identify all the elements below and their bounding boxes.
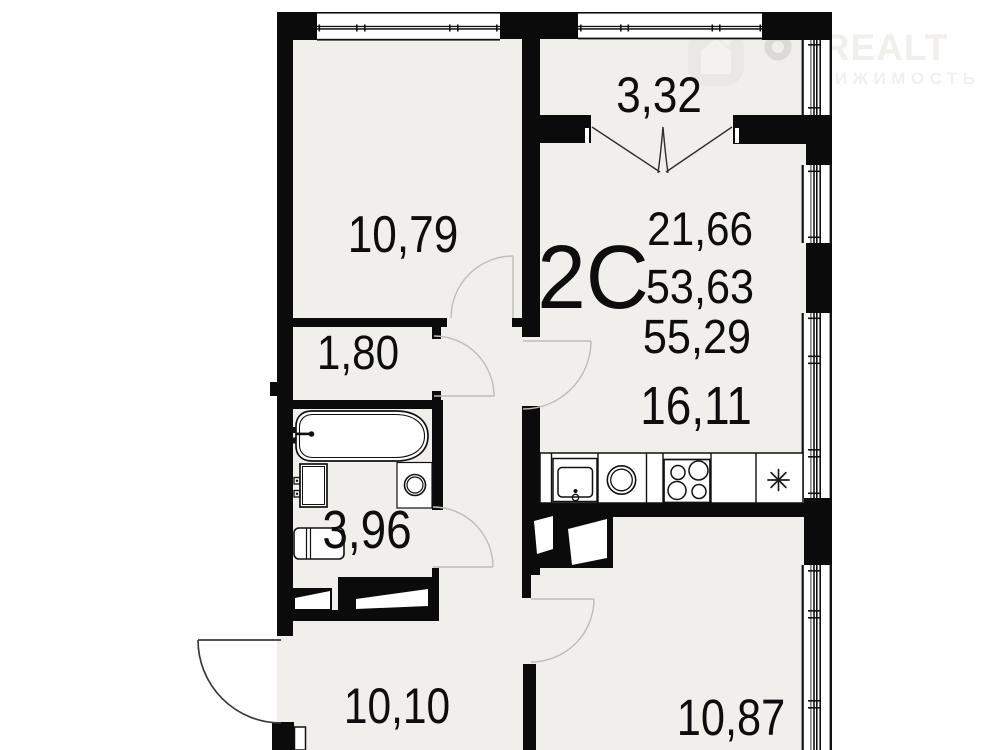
svg-text:21,66: 21,66	[647, 204, 753, 256]
svg-text:10,79: 10,79	[348, 206, 459, 264]
svg-text:53,63: 53,63	[646, 260, 754, 314]
svg-text:3,32: 3,32	[616, 66, 702, 122]
svg-text:10,87: 10,87	[677, 690, 785, 747]
svg-text:55,29: 55,29	[643, 310, 751, 364]
svg-text:3,96: 3,96	[322, 500, 411, 560]
svg-text:НЕДВИЖИМОСТЬ: НЕДВИЖИМОСТЬ	[765, 69, 981, 88]
svg-text:16,11: 16,11	[640, 376, 751, 436]
svg-text:10,10: 10,10	[344, 678, 450, 734]
svg-text:1,80: 1,80	[317, 325, 399, 379]
svg-text:2C: 2C	[537, 227, 649, 327]
